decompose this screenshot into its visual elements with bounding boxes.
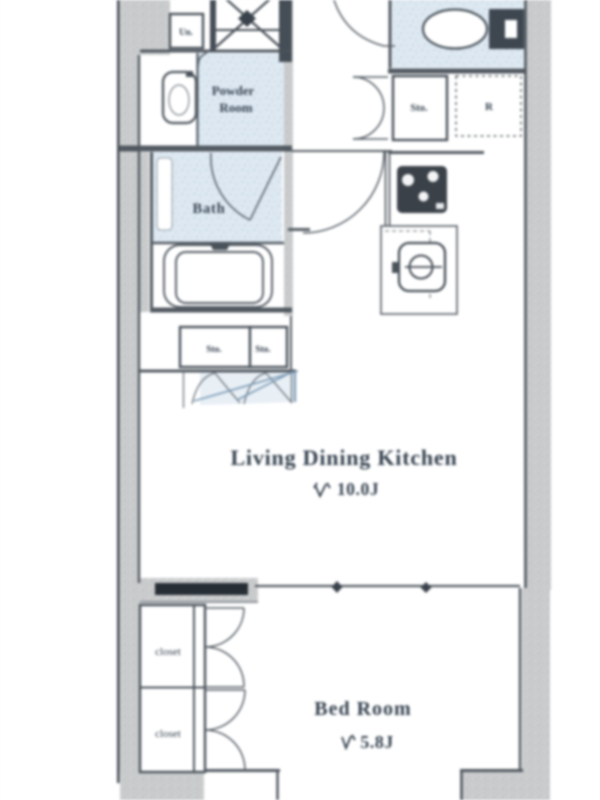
svg-text:Living Dining Kitchen: Living Dining Kitchen [230, 445, 457, 470]
svg-text:10.0J: 10.0J [337, 479, 379, 499]
svg-text:Room: Room [219, 100, 252, 115]
svg-text:Un.: Un. [179, 27, 193, 37]
svg-text:5.8J: 5.8J [360, 732, 394, 752]
svg-text:R: R [485, 101, 494, 113]
svg-text:closet: closet [155, 728, 181, 740]
svg-text:Powder: Powder [212, 83, 255, 98]
svg-text:Sto.: Sto. [206, 345, 222, 355]
svg-text:Sto.: Sto. [255, 345, 271, 355]
svg-text:closet: closet [155, 646, 181, 658]
svg-text:Sto.: Sto. [410, 103, 428, 114]
svg-text:Bed Room: Bed Room [314, 698, 411, 720]
svg-text:Bath: Bath [192, 201, 225, 217]
